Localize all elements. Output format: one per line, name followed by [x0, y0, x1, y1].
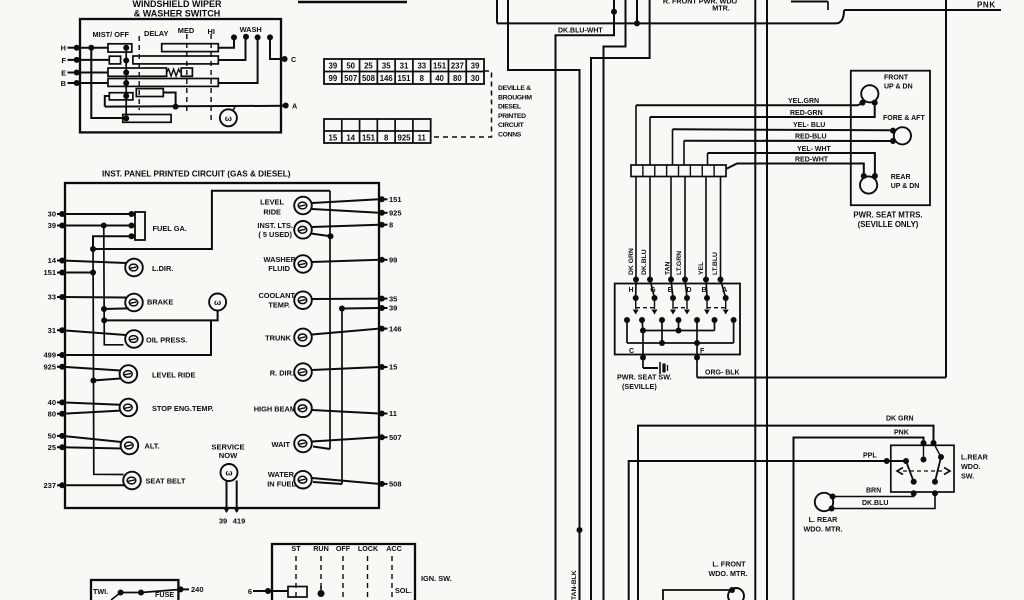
svg-text:MED: MED: [178, 26, 195, 35]
svg-text:507: 507: [389, 433, 402, 442]
svg-text:PPL: PPL: [863, 453, 877, 460]
svg-text:508: 508: [389, 480, 402, 489]
svg-text:25: 25: [48, 443, 56, 452]
svg-text:507: 507: [344, 74, 357, 83]
svg-text:INST. LTS.: INST. LTS.: [257, 221, 293, 230]
svg-text:RUN: RUN: [313, 544, 329, 553]
svg-text:240: 240: [191, 585, 204, 594]
svg-text:YEL- BLU: YEL- BLU: [793, 122, 825, 129]
svg-text:OFF: OFF: [336, 544, 351, 553]
svg-text:( 5 USED): ( 5 USED): [258, 230, 292, 239]
svg-text:WAIT: WAIT: [272, 440, 291, 449]
svg-text:L. FRONT: L. FRONT: [712, 560, 746, 569]
svg-text:99: 99: [389, 256, 397, 265]
svg-text:15: 15: [329, 133, 338, 142]
svg-text:CIRCUIT: CIRCUIT: [498, 122, 525, 129]
svg-text:146: 146: [389, 324, 402, 333]
svg-text:FORE & AFT: FORE & AFT: [883, 115, 925, 122]
svg-text:TAN: TAN: [665, 261, 672, 275]
svg-text:MTR.: MTR.: [712, 4, 730, 13]
svg-text:39: 39: [471, 62, 480, 71]
svg-text:8: 8: [389, 220, 393, 229]
svg-text:39: 39: [389, 304, 397, 313]
svg-text:H: H: [628, 287, 633, 294]
svg-text:39: 39: [329, 62, 338, 71]
svg-text:YEL- WHT: YEL- WHT: [797, 146, 832, 153]
svg-text:25: 25: [364, 62, 373, 71]
svg-text:ω: ω: [214, 297, 221, 307]
svg-text:8: 8: [384, 133, 389, 142]
svg-text:14: 14: [48, 256, 57, 265]
svg-text:WASH: WASH: [240, 25, 262, 34]
svg-text:PNK: PNK: [894, 430, 909, 437]
svg-text:L. REAR: L. REAR: [809, 515, 839, 524]
svg-text:99: 99: [329, 74, 338, 83]
svg-text:TEMP.: TEMP.: [268, 301, 290, 310]
svg-text:31: 31: [48, 326, 56, 335]
svg-text:L.DIR.: L.DIR.: [152, 264, 173, 273]
svg-text:DK.BLU: DK.BLU: [641, 249, 648, 275]
svg-text:35: 35: [382, 62, 391, 71]
svg-text:30: 30: [471, 74, 480, 83]
svg-text:STOP ENG.TEMP.: STOP ENG.TEMP.: [152, 404, 214, 413]
svg-text:14: 14: [346, 133, 355, 142]
svg-text:ACC: ACC: [386, 544, 402, 553]
svg-text:PRINTED: PRINTED: [498, 113, 526, 120]
svg-text:F: F: [700, 348, 705, 355]
svg-text:ORG- BLK: ORG- BLK: [705, 370, 740, 377]
svg-text:L.REAR: L.REAR: [961, 453, 989, 462]
svg-text:DK.BLU-WHT: DK.BLU-WHT: [558, 28, 603, 35]
svg-text:COOLANT: COOLANT: [258, 291, 295, 300]
svg-text:YEL: YEL: [698, 262, 705, 275]
svg-text:33: 33: [417, 62, 426, 71]
svg-text:80: 80: [48, 409, 56, 418]
svg-text:237: 237: [43, 481, 56, 490]
svg-text:WDO.: WDO.: [961, 462, 981, 471]
svg-text:151: 151: [433, 62, 447, 71]
svg-text:UP & DN: UP & DN: [891, 183, 920, 190]
svg-text:50: 50: [346, 62, 355, 71]
svg-text:RED-WHT: RED-WHT: [795, 156, 829, 163]
svg-text:BRAKE: BRAKE: [147, 298, 173, 307]
svg-text:BROUGHM: BROUGHM: [498, 94, 532, 101]
svg-text:11: 11: [418, 133, 427, 142]
svg-text:11: 11: [389, 409, 397, 418]
svg-text:R. DIR.: R. DIR.: [270, 369, 294, 378]
svg-text:151: 151: [398, 74, 412, 83]
svg-text:925: 925: [43, 363, 56, 372]
svg-text:LEVEL RIDE: LEVEL RIDE: [152, 371, 195, 380]
svg-text:8: 8: [420, 74, 425, 83]
svg-text:INST. PANEL PRINTED CIRCUIT (G: INST. PANEL PRINTED CIRCUIT (GAS & DIESE…: [102, 170, 291, 179]
svg-text:PNK: PNK: [977, 1, 996, 10]
svg-text:40: 40: [435, 74, 444, 83]
svg-text:OIL PRESS.: OIL PRESS.: [146, 336, 187, 345]
svg-text:RED-BLU: RED-BLU: [795, 134, 827, 141]
svg-text:39: 39: [219, 517, 227, 526]
svg-text:TWI.: TWI.: [93, 587, 108, 596]
svg-text:ω: ω: [225, 113, 232, 123]
svg-text:LEVEL: LEVEL: [260, 198, 284, 207]
svg-text:LT.GRN: LT.GRN: [676, 251, 683, 275]
svg-text:ST: ST: [291, 544, 301, 553]
svg-text:PWR. SEAT SW.: PWR. SEAT SW.: [617, 373, 672, 382]
svg-text:CONNS: CONNS: [498, 132, 522, 139]
svg-text:39: 39: [48, 221, 56, 230]
svg-text:TRUNK: TRUNK: [265, 334, 292, 343]
svg-text:419: 419: [233, 517, 246, 526]
svg-text:(SEVILLE): (SEVILLE): [622, 382, 657, 391]
svg-text:31: 31: [400, 62, 409, 71]
svg-text:499: 499: [43, 351, 56, 360]
svg-text:146: 146: [380, 74, 394, 83]
svg-text:RED-GRN: RED-GRN: [790, 110, 823, 117]
svg-text:E: E: [61, 69, 66, 78]
svg-text:80: 80: [453, 74, 462, 83]
svg-text:DIESEL: DIESEL: [498, 104, 521, 111]
svg-text:FUEL GA.: FUEL GA.: [153, 224, 187, 233]
svg-text:DEVILLE &: DEVILLE &: [498, 85, 531, 92]
svg-text:(SEVILLE ONLY): (SEVILLE ONLY): [858, 220, 919, 229]
svg-text:& WASHER SWITCH: & WASHER SWITCH: [134, 9, 221, 19]
svg-text:40: 40: [48, 398, 56, 407]
svg-text:ω: ω: [225, 468, 232, 478]
svg-text:MIST/ OFF: MIST/ OFF: [93, 30, 130, 39]
svg-text:SOL.: SOL.: [395, 586, 412, 595]
svg-text:IGN. SW.: IGN. SW.: [421, 574, 452, 583]
svg-text:33: 33: [48, 293, 56, 302]
svg-text:DELAY: DELAY: [144, 29, 168, 38]
svg-text:DK GRN: DK GRN: [628, 248, 635, 275]
svg-text:508: 508: [362, 74, 376, 83]
svg-text:WASHER: WASHER: [264, 255, 297, 264]
svg-text:WDO. MTR.: WDO. MTR.: [708, 569, 747, 578]
svg-text:FLUID: FLUID: [268, 264, 290, 273]
svg-text:LOCK: LOCK: [358, 544, 379, 553]
svg-text:6: 6: [248, 587, 252, 596]
svg-text:15: 15: [389, 363, 397, 372]
svg-text:UP & DN: UP & DN: [884, 84, 913, 91]
svg-text:50: 50: [48, 432, 56, 441]
svg-text:151: 151: [43, 268, 56, 277]
svg-text:NOW: NOW: [219, 451, 238, 460]
svg-text:BRN: BRN: [866, 488, 881, 495]
svg-text:A: A: [292, 102, 297, 111]
svg-text:35: 35: [389, 294, 397, 303]
svg-text:H: H: [61, 44, 66, 53]
svg-text:PWR. SEAT MTRS.: PWR. SEAT MTRS.: [853, 211, 922, 220]
svg-text:HIGH BEAM: HIGH BEAM: [254, 405, 296, 414]
svg-text:30: 30: [48, 210, 56, 219]
svg-text:925: 925: [398, 133, 412, 142]
svg-text:SEAT BELT: SEAT BELT: [146, 477, 186, 486]
svg-text:FRONT: FRONT: [884, 75, 909, 82]
svg-text:SW.: SW.: [961, 472, 974, 481]
svg-text:925: 925: [389, 209, 402, 218]
svg-text:WATER: WATER: [268, 470, 295, 479]
svg-text:C: C: [291, 55, 296, 64]
svg-text:WDO. MTR.: WDO. MTR.: [803, 525, 842, 534]
svg-text:YEL.GRN: YEL.GRN: [788, 98, 819, 105]
svg-text:151: 151: [389, 195, 402, 204]
svg-text:DK.BLU: DK.BLU: [862, 500, 888, 507]
svg-text:151: 151: [362, 133, 376, 142]
svg-text:TAN-BLK: TAN-BLK: [571, 570, 578, 600]
svg-text:RIDE: RIDE: [263, 208, 281, 217]
svg-text:C: C: [629, 348, 634, 355]
svg-text:REAR: REAR: [891, 174, 911, 181]
svg-text:237: 237: [451, 62, 464, 71]
svg-text:DK GRN: DK GRN: [886, 416, 914, 423]
svg-text:F: F: [61, 56, 66, 65]
svg-text:IN FUEL: IN FUEL: [267, 480, 296, 489]
svg-text:ALT.: ALT.: [145, 442, 160, 451]
svg-text:B: B: [61, 79, 66, 88]
svg-text:LT.BLU: LT.BLU: [712, 252, 719, 275]
